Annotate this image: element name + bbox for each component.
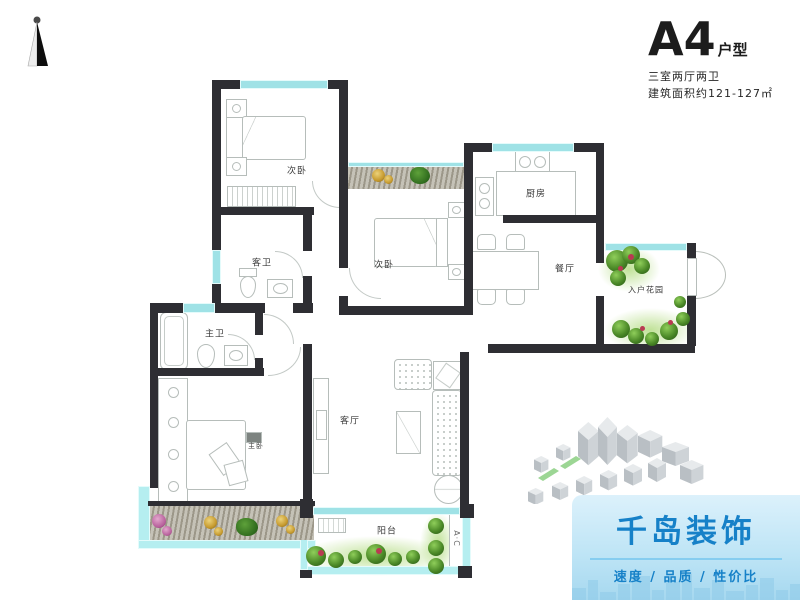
wall-segment [148, 501, 315, 506]
wall-segment [150, 368, 264, 376]
room-label-living: 客厅 [340, 414, 360, 427]
plan-spec: 三室两厅两卫 [648, 68, 773, 85]
room-label-master-bedroom: 主卧 [248, 441, 264, 451]
sink-symbol [267, 279, 293, 298]
plant-symbol [306, 546, 326, 566]
plant-symbol [328, 552, 344, 568]
side-desk-symbol [433, 361, 463, 390]
wall-segment [212, 80, 221, 252]
flower-symbol [384, 175, 393, 184]
bay-window [138, 486, 150, 544]
entry-door-swing [695, 251, 726, 299]
wall-segment [464, 143, 492, 152]
north-arrow-icon [24, 14, 54, 70]
wall-segment [212, 207, 314, 215]
bay-window [138, 540, 316, 549]
door-arc [275, 251, 303, 278]
plant-symbol [645, 332, 659, 346]
sliding-door [313, 507, 460, 515]
plant-symbol [236, 518, 258, 536]
room-label-guest-bath: 客卫 [252, 256, 272, 269]
flower-symbol [618, 266, 623, 271]
brand-panel: 千岛装饰 速度 / 品质 / 性价比 [572, 495, 800, 600]
wall-segment [150, 368, 158, 488]
wall-segment [503, 215, 601, 223]
wall-segment [255, 311, 263, 335]
bed-headboard-symbol [436, 218, 448, 267]
flower-symbol [318, 550, 324, 556]
room-label-bedroom-mid: 次卧 [374, 258, 394, 271]
flower-symbol [668, 320, 673, 325]
toilet-symbol [240, 276, 256, 298]
chair-symbol [477, 234, 496, 250]
wall-segment [300, 570, 312, 578]
room-label-dining: 餐厅 [555, 262, 575, 275]
balcony-marker: A·C [452, 530, 461, 547]
window-strip [212, 250, 221, 284]
wall-segment [460, 504, 474, 518]
flower-symbol [628, 254, 634, 260]
window-strip [492, 143, 574, 152]
plan-code: A4 [648, 12, 716, 66]
door-arc [264, 314, 294, 344]
room-label-entry-garden: 入户花园 [628, 285, 664, 296]
floor-plan-page: A4户型 三室两厅两卫 建筑面积约121-127㎡ [0, 0, 800, 600]
wall-segment [339, 80, 348, 268]
brand-name: 千岛装饰 [572, 506, 800, 551]
plan-code-suffix: 户型 [718, 41, 748, 59]
wall-segment [464, 143, 473, 315]
entry-door-leaf [687, 258, 697, 296]
wall-segment [303, 213, 312, 251]
wardrobe-symbol [227, 186, 296, 207]
room-label-master-bath: 主卫 [205, 327, 225, 340]
flower-symbol [214, 527, 223, 536]
window-strip [348, 162, 464, 167]
plant-symbol [634, 258, 650, 274]
room-label-bedroom-top: 次卧 [287, 164, 307, 177]
flower-symbol [376, 548, 382, 554]
planter-box [348, 167, 464, 189]
plant-symbol [348, 550, 362, 564]
brand-divider [590, 558, 782, 560]
room-label-kitchen: 厨房 [526, 187, 546, 200]
door-arc [228, 334, 255, 360]
plant-symbol [428, 540, 444, 556]
wall-segment [460, 352, 469, 508]
wall-segment [150, 303, 158, 376]
wardrobe-symbol [158, 378, 188, 504]
plan-area: 建筑面积约121-127㎡ [648, 85, 773, 102]
wall-segment [596, 296, 604, 346]
coffee-table-symbol [396, 411, 421, 454]
bathtub-symbol [160, 312, 188, 370]
toilet-symbol [197, 344, 215, 368]
wall-segment [339, 306, 473, 315]
wall-segment [458, 566, 472, 578]
flower-symbol [162, 526, 172, 536]
wall-segment [488, 344, 695, 353]
wall-segment [303, 344, 312, 502]
door-arc [312, 181, 340, 208]
bed-symbol [242, 116, 306, 160]
wall-segment [596, 225, 604, 263]
nightstand-symbol [448, 202, 465, 218]
sofa-symbol [432, 390, 462, 476]
plant-symbol [388, 552, 402, 566]
chair-symbol [506, 234, 525, 250]
plant-symbol [410, 167, 430, 184]
plant-symbol [428, 558, 444, 574]
nightstand-symbol [448, 264, 465, 280]
plant-symbol [676, 312, 690, 326]
wall-segment [596, 143, 604, 225]
window-strip [183, 303, 215, 313]
balcony-step-symbol [318, 518, 346, 533]
brand-tagline: 速度 / 品质 / 性价比 [572, 566, 800, 585]
wall-segment [293, 303, 313, 313]
plant-symbol [406, 550, 420, 564]
tv-symbol [316, 410, 327, 440]
door-arc [268, 347, 301, 376]
plant-symbol [610, 270, 626, 286]
window-strip [240, 80, 328, 89]
wall-segment [687, 243, 696, 259]
plant-symbol [428, 518, 444, 534]
stove-symbol [475, 177, 494, 216]
nightstand-symbol [226, 157, 247, 176]
armchair-symbol [394, 359, 432, 390]
building-cluster-render [520, 416, 710, 504]
flower-symbol [640, 326, 645, 331]
title-block: A4户型 三室两厅两卫 建筑面积约121-127㎡ [648, 16, 773, 102]
flower-symbol [276, 515, 288, 527]
room-label-balcony: 阳台 [377, 524, 397, 537]
dining-table-symbol [469, 251, 539, 290]
plant-symbol [366, 544, 386, 564]
chair-symbol [477, 289, 496, 305]
balcony-rail [462, 517, 471, 568]
flower-symbol [286, 525, 295, 534]
door-arc [349, 268, 381, 299]
planter-box [150, 506, 314, 540]
round-table-symbol [434, 475, 463, 504]
plant-symbol [674, 296, 686, 308]
chair-symbol [506, 289, 525, 305]
